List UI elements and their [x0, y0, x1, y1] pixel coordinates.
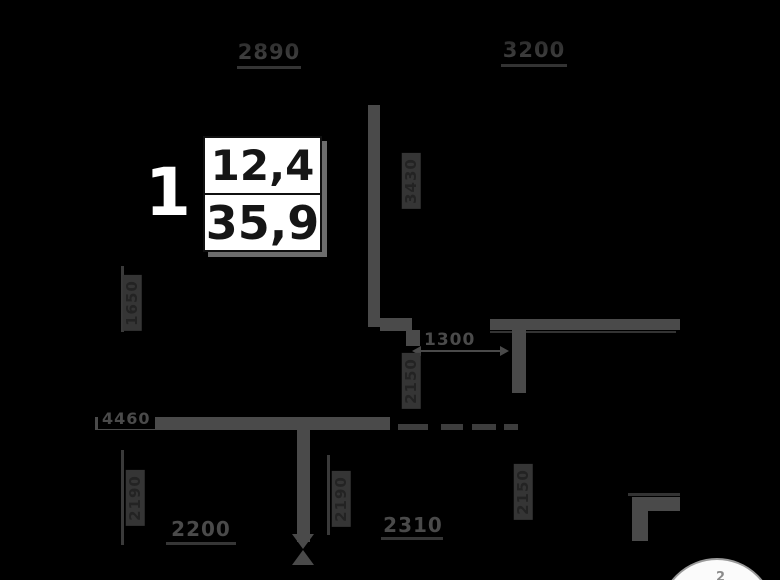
- door-swing-icon-top: [292, 534, 314, 549]
- extension-line-center-lower: [327, 455, 330, 535]
- dim-label-middle: 1300: [424, 332, 475, 349]
- extension-line-left-lower: [121, 450, 124, 545]
- door-jamb: [406, 330, 420, 346]
- dim-label-vertical-upper-center: 3430: [402, 153, 421, 209]
- dim-line-middle: [420, 350, 506, 352]
- dim-line-bottom-left: [166, 542, 236, 545]
- dim-label-vertical-bottom-right: 2150: [514, 464, 533, 520]
- total-area-value: 35,9: [205, 195, 320, 250]
- dim-label-vertical-mid-center: 2150: [402, 353, 421, 409]
- wall-vertical-middle: [297, 430, 310, 542]
- floor-plan: 2890 3200 1300 4460 3430 1650 2150 2190 …: [0, 0, 780, 580]
- area-info-box: 12,4 35,9: [203, 136, 322, 252]
- wall-dash-4: [504, 424, 518, 430]
- wall-dash-2: [441, 424, 463, 430]
- dim-line-bottom-center: [381, 537, 443, 540]
- rooms-count: 1: [140, 160, 196, 226]
- door-swing-icon-bottom: [292, 550, 314, 565]
- dim-label-top-left: 2890: [237, 42, 301, 63]
- dim-label-top-right: 3200: [501, 40, 567, 61]
- top-fade-overlay: [0, 0, 780, 70]
- dim-label-left-on-wall: 4460: [98, 409, 155, 429]
- wall-dash-1: [398, 424, 428, 430]
- wall-dash-3: [472, 424, 496, 430]
- dim-line-top-left: [237, 66, 301, 69]
- dim-label-bottom-center: 2310: [382, 515, 444, 535]
- wall-vertical-right-mid: [512, 330, 526, 393]
- wall-corner-vertical: [632, 511, 648, 541]
- dim-arrow-right-icon: [500, 346, 509, 356]
- dim-label-vertical-bottom-center: 2190: [332, 471, 351, 527]
- dim-label-vertical-bottom-left: 2190: [126, 470, 145, 526]
- living-area-value: 12,4: [205, 138, 320, 195]
- compass-circle: 2: [659, 558, 775, 580]
- dim-label-vertical-left: 1650: [123, 275, 142, 331]
- wall-corner-horizontal: [632, 497, 680, 511]
- dim-line-top-right: [501, 64, 567, 67]
- wall-top-right-segment-b: [490, 319, 680, 330]
- wall-corner-thin-line: [628, 493, 680, 496]
- wall-vertical-main: [368, 105, 380, 327]
- compass-label: 2: [716, 571, 725, 580]
- dim-label-bottom-left: 2200: [166, 519, 236, 539]
